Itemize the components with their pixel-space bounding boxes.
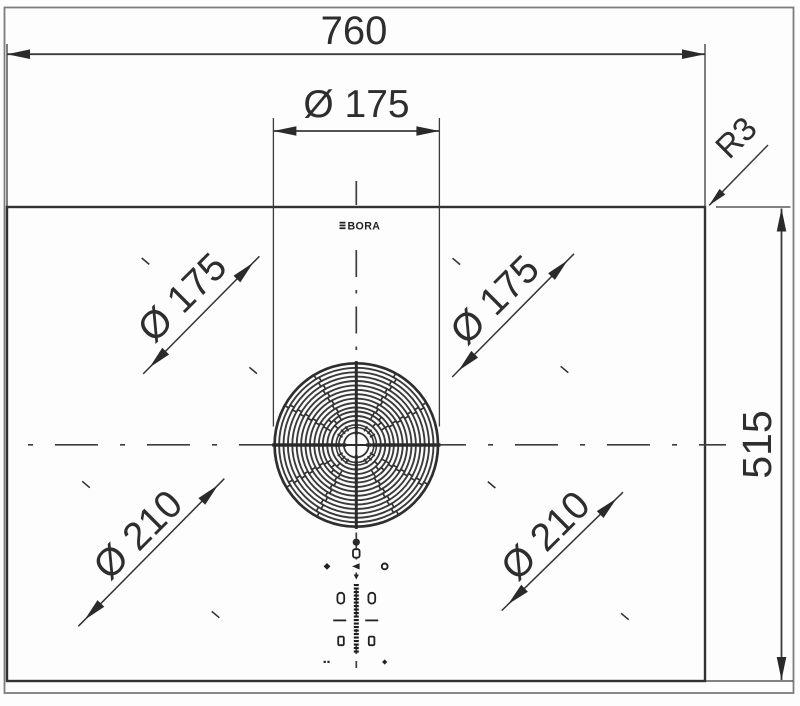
svg-text:BORA: BORA [348, 220, 381, 232]
svg-text:760: 760 [321, 9, 388, 53]
svg-text:515: 515 [734, 410, 780, 478]
svg-text:Ø 175: Ø 175 [303, 83, 409, 126]
